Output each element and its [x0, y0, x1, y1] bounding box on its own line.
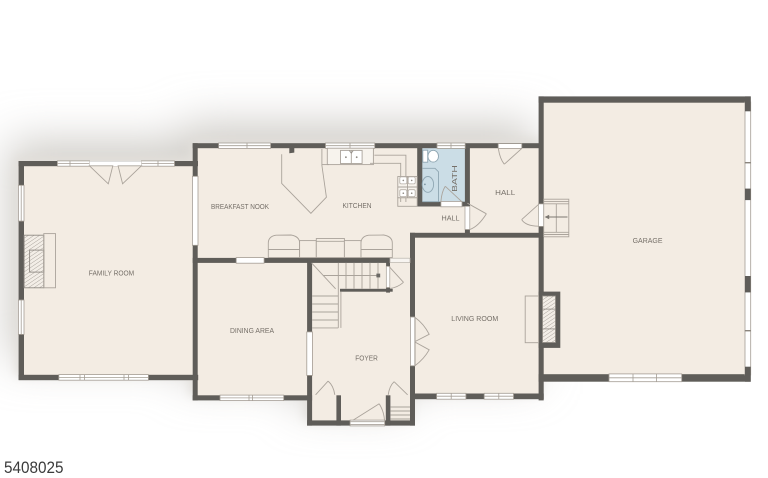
svg-text:KITCHEN: KITCHEN: [343, 201, 372, 210]
svg-text:DINING AREA: DINING AREA: [230, 326, 275, 335]
svg-text:HALL: HALL: [442, 214, 460, 223]
svg-text:GARAGE: GARAGE: [633, 236, 663, 245]
svg-text:BREAKFAST NOOK: BREAKFAST NOOK: [211, 202, 269, 211]
svg-text:FOYER: FOYER: [355, 354, 378, 363]
svg-text:BATH: BATH: [450, 165, 459, 192]
svg-text:LIVING ROOM: LIVING ROOM: [451, 314, 498, 323]
svg-text:FAMILY ROOM: FAMILY ROOM: [89, 269, 134, 278]
svg-text:5408025: 5408025: [4, 458, 64, 477]
svg-text:HALL: HALL: [495, 188, 515, 197]
